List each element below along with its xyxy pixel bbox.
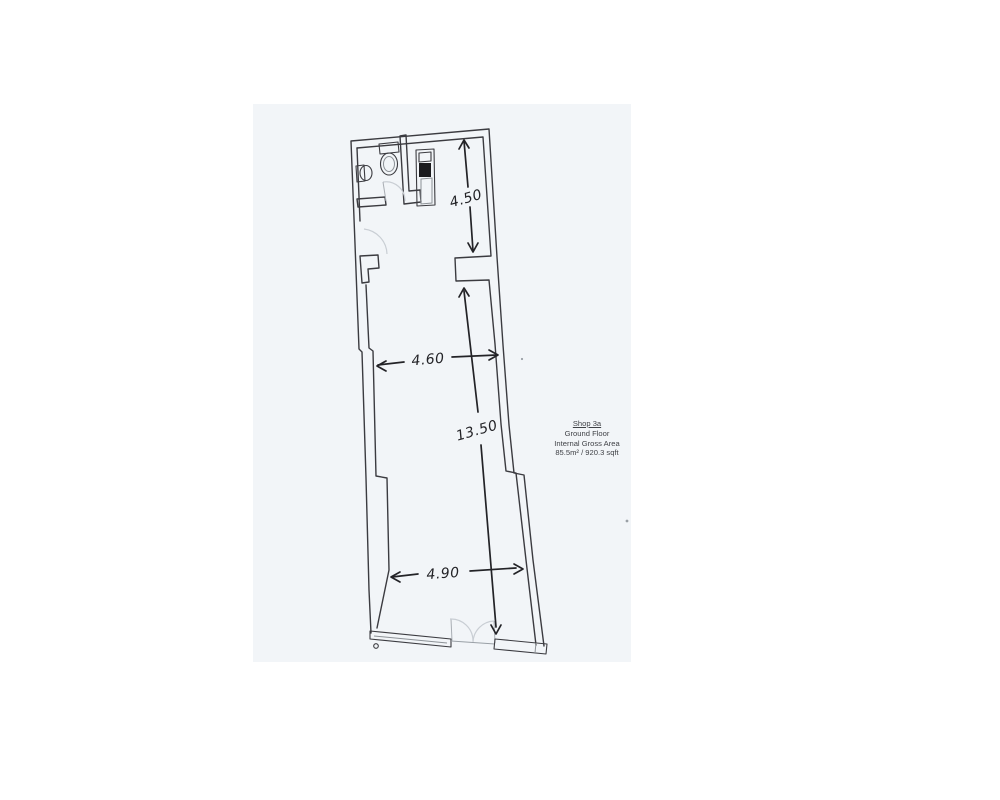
floorplan-drawing: 4.50 4.60 13.50 4.90 (0, 0, 1000, 800)
area-info-block: Shop 3a Ground Floor Internal Gross Area… (541, 419, 633, 458)
scan-speck (626, 520, 629, 523)
shop-title: Shop 3a (541, 419, 633, 429)
scanned-floorplan-page: 4.50 4.60 13.50 4.90 Shop 3a (0, 0, 1000, 800)
scan-speck (521, 358, 523, 360)
dim-label-4-90: 4.90 (426, 565, 460, 583)
area-value: 85.5m² / 920.3 sqft (541, 448, 633, 458)
dim-label-4-60: 4.60 (411, 351, 445, 370)
floor-label: Ground Floor (541, 429, 633, 439)
area-heading: Internal Gross Area (541, 439, 633, 449)
